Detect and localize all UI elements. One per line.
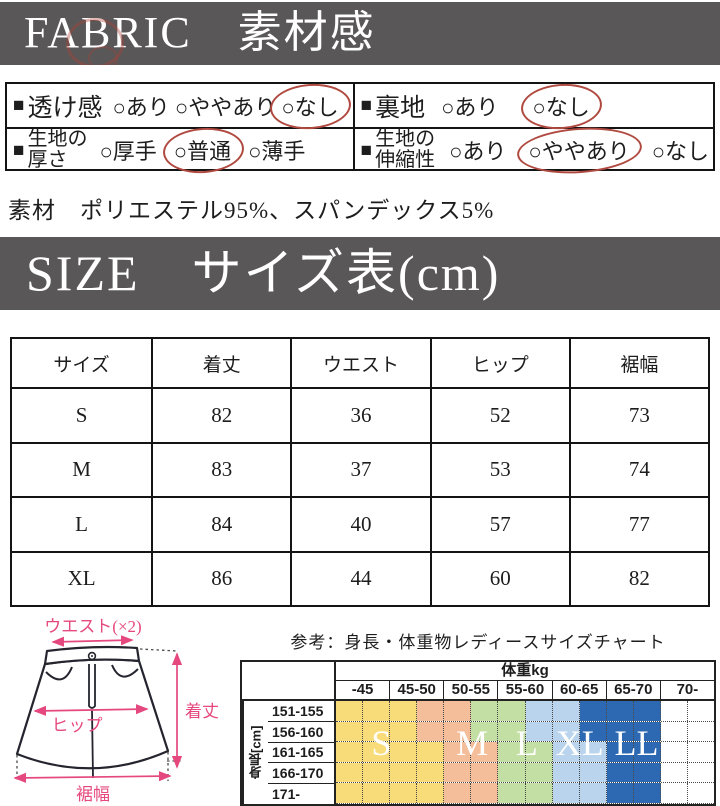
col-header-size: サイズ [12,339,151,387]
grid-cell [336,742,363,762]
grid-cell [363,742,390,762]
grid-cell [390,701,417,721]
grid-cell [417,701,444,721]
fabric-row-sheerness: ■ 透け感 ○あり ○ややあり ○なし [7,84,353,127]
grid-cell [553,701,580,721]
fabric-row-lining: ■ 裏地 ○あり ○なし [353,84,713,127]
option-ari: ○あり [449,134,506,166]
table-row-xl: XL 86 44 60 82 [12,551,708,606]
table-row-m: M 83 37 53 74 [12,442,708,497]
grid-cell [336,701,363,721]
guide-dotted-top [140,649,177,651]
cell-size: S [12,387,151,442]
grid-cell [580,783,607,803]
product-info-image: FABRIC 素材感 ■ 透け感 ○あり ○ややあり ○なし ■ 裏地 ○あり … [0,0,720,806]
grid-cell [607,701,634,721]
col-header-length: 着丈 [151,339,290,387]
weight-range: 50-55 [444,681,498,699]
cell-length: 82 [151,387,290,442]
cell-waist: 44 [290,551,429,606]
fabric-label-stretch-line1: 生地の [375,129,435,150]
grid-row [336,722,714,743]
reference-chart-table: 身長[cm] 151-155 156-160 161-165 166-170 1… [240,660,716,806]
grid-cell [526,783,553,803]
grid-cell [390,763,417,783]
weight-range: 60-65 [553,681,607,699]
grid-cell [498,742,525,762]
cell-length: 83 [151,442,290,497]
weight-range: 45-50 [390,681,444,699]
length-label: 着丈 [185,702,219,721]
square-bullet-icon: ■ [13,141,24,160]
grid-cell [444,763,471,783]
grid-cell [553,742,580,762]
weight-range: 65-70 [607,681,661,699]
option-nashi: ○なし [652,134,709,166]
grid-cell [580,742,607,762]
table-row-s: S 82 36 52 73 [12,387,708,442]
fabric-row-stretch: ■ 生地の 伸縮性 ○あり ○ややあり ○なし [353,127,713,171]
grid-cell [363,701,390,721]
height-range: 171- [268,784,334,804]
cell-hem: 77 [569,496,708,551]
grid-cell [607,783,634,803]
grid-cell [607,742,634,762]
grid-cell [498,763,525,783]
grid-row [336,701,714,722]
fabric-label-thickness-line2: 厚さ [27,150,87,171]
corner-empty-cell [242,662,334,701]
grid-cell [661,783,688,803]
grid-cell [471,783,498,803]
weight-range: -45 [336,681,390,699]
grid-cell [553,783,580,803]
grid-cell [553,763,580,783]
option-futsuu-selected: ○普通 [174,134,231,166]
grid-cell [471,742,498,762]
cell-waist: 36 [290,387,429,442]
grid-cell [688,701,714,721]
grid-cell [634,742,661,762]
height-range: 151-155 [268,701,334,722]
grid-cell [661,722,688,742]
grid-cell [526,722,553,742]
reference-size-chart: 参考：身長・体重物レディースサイズチャート 身長[cm] 151-155 156… [240,628,716,806]
weight-axis-label: 体重kg [336,662,714,681]
cell-length: 86 [151,551,290,606]
cell-hip: 52 [430,387,569,442]
grid-cell [390,783,417,803]
grid-cell [661,763,688,783]
cell-waist: 37 [290,442,429,497]
height-range: 156-160 [268,722,334,743]
grid-cell [634,701,661,721]
grid-cell [580,763,607,783]
grid-cell [661,701,688,721]
col-header-waist: ウエスト [290,339,429,387]
table-row-l: L 84 40 57 77 [12,496,708,551]
grid-cell [634,722,661,742]
grid-cell [471,701,498,721]
grid-cell [526,701,553,721]
option-yayaari: ○ややあり [175,90,276,122]
button-dot [91,655,93,657]
height-range: 166-170 [268,763,334,784]
size-banner: SIZE サイズ表(cm) [0,237,720,310]
hip-label: ヒップ [52,716,103,735]
hem-arrow [15,776,170,778]
grid-cell [444,701,471,721]
size-table: サイズ 着丈 ウエスト ヒップ 裾幅 S 82 36 52 73 M 83 37… [10,337,710,607]
cell-hip: 57 [430,496,569,551]
grid-cell [363,783,390,803]
reference-chart-title: 参考：身長・体重物レディースサイズチャート [240,628,716,653]
grid-cell [688,722,714,742]
cell-hem: 73 [569,387,708,442]
cell-size: M [12,442,151,497]
cell-size: XL [12,551,151,606]
size-color-grid: S M L XL LL [336,701,714,804]
height-range: 161-165 [268,743,334,764]
size-banner-title: SIZE サイズ表(cm) [26,245,500,301]
grid-cell [417,722,444,742]
cell-hip: 60 [430,551,569,606]
fabric-label-lining: 裏地 [375,88,425,124]
grid-cell [336,722,363,742]
grid-cell [634,763,661,783]
fabric-banner: FABRIC 素材感 [0,2,720,65]
waist-arrow [53,640,132,642]
cell-waist: 40 [290,496,429,551]
fabric-property-table: ■ 透け感 ○あり ○ややあり ○なし ■ 裏地 ○あり ○なし ■ [5,82,715,171]
grid-cell [526,763,553,783]
cell-length: 84 [151,496,290,551]
option-ari: ○あり [441,90,498,122]
grid-cell [688,783,714,803]
option-usude: ○薄手 [248,134,305,166]
grid-cell [390,742,417,762]
grid-cell [607,722,634,742]
hem-label: 裾幅 [76,785,110,804]
option-atsude: ○厚手 [99,134,156,166]
grid-cell [471,722,498,742]
grid-cell [336,783,363,803]
fabric-label-sheerness: 透け感 [27,88,102,124]
material-composition: 素材 ポリエステル95%、スパンデックス5% [8,191,494,225]
fabric-label-thickness-line1: 生地の [27,129,87,150]
grid-cell [580,722,607,742]
grid-row [336,763,714,784]
grid-cell [390,722,417,742]
cell-hip: 53 [430,442,569,497]
height-axis-label: 身長[cm] [242,701,268,804]
skirt-measurement-diagram: ウエスト(×2) ヒップ 着丈 裾幅 [5,614,235,806]
cell-hem: 82 [569,551,708,606]
size-table-header-row: サイズ 着丈 ウエスト ヒップ 裾幅 [12,339,708,387]
square-bullet-icon: ■ [361,141,372,160]
grid-cell [444,722,471,742]
option-ari: ○あり [113,90,170,122]
grid-cell [661,742,688,762]
grid-cell [363,763,390,783]
grid-cell [688,742,714,762]
option-nashi-selected: ○なし [281,90,338,122]
weight-range: 70- [661,681,714,699]
grid-row [336,742,714,763]
grid-cell [634,783,661,803]
grid-cell [363,722,390,742]
fabric-banner-title: FABRIC 素材感 [24,8,376,57]
grid-cell [607,763,634,783]
grid-cell [498,783,525,803]
grid-cell [417,763,444,783]
grid-cell [580,701,607,721]
grid-cell [471,763,498,783]
grid-cell [498,722,525,742]
grid-cell [553,722,580,742]
grid-cell [444,783,471,803]
grid-cell [526,742,553,762]
waist-label: ウエスト(×2) [44,617,141,636]
cell-size: L [12,496,151,551]
option-nashi-selected: ○なし [532,90,589,122]
col-header-hem: 裾幅 [569,339,708,387]
fabric-label-stretch-line2: 伸縮性 [375,150,435,171]
cell-hem: 74 [569,442,708,497]
grid-cell [444,742,471,762]
weight-range: 55-60 [498,681,552,699]
grid-cell [498,701,525,721]
grid-cell [688,763,714,783]
grid-cell [336,763,363,783]
square-bullet-icon: ■ [361,96,372,115]
fabric-row-thickness: ■ 生地の 厚さ ○厚手 ○普通 ○薄手 [7,127,353,171]
col-header-hip: ヒップ [430,339,569,387]
grid-row [336,783,714,804]
grid-cell [417,783,444,803]
square-bullet-icon: ■ [13,96,24,115]
grid-cell [417,742,444,762]
option-yayaari-selected: ○ややあり [528,134,629,166]
